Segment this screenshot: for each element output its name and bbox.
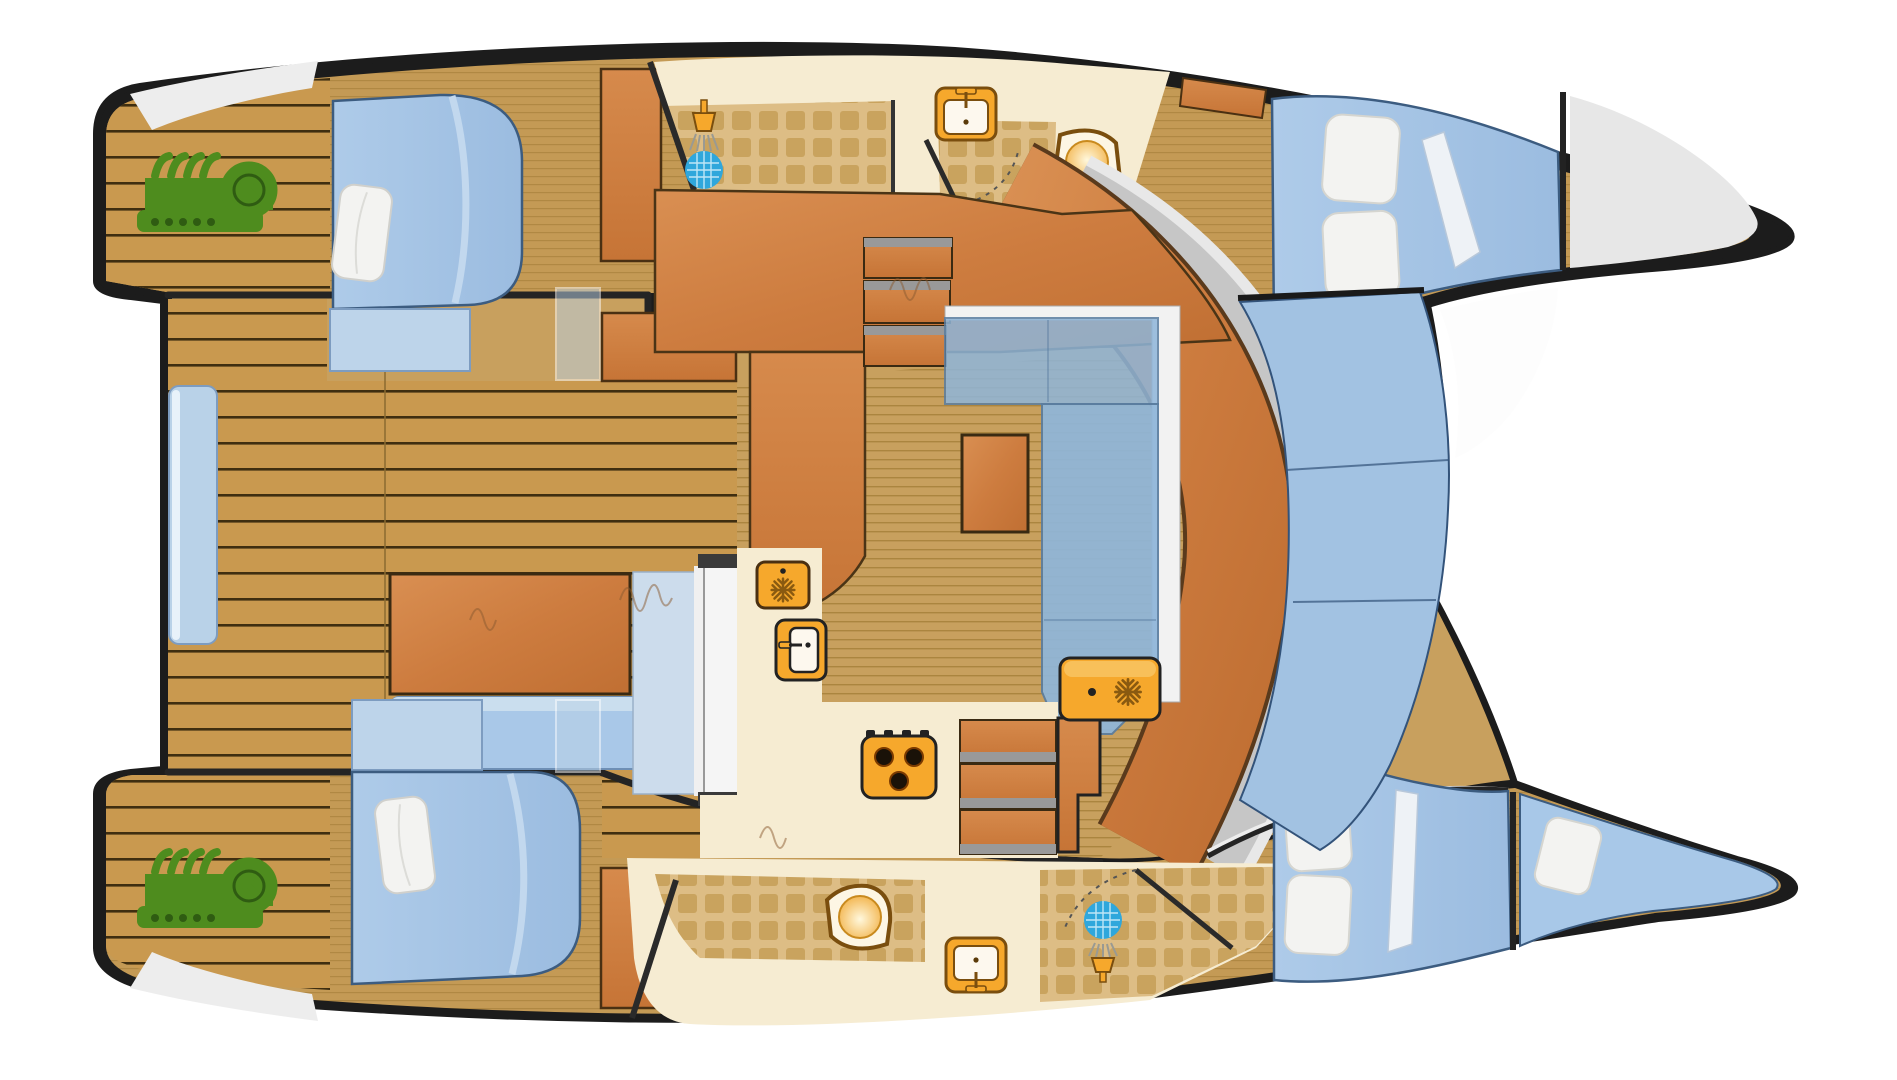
sink-icon	[936, 88, 996, 140]
sink-icon	[946, 938, 1006, 992]
salon-sliding-door	[704, 566, 738, 794]
starboard-companionway-stairs	[960, 720, 1056, 854]
foredeck-gap	[1440, 288, 1558, 458]
freezer-icon	[1060, 658, 1160, 720]
door-track	[694, 566, 704, 796]
floor-plan-page	[0, 0, 1897, 1080]
cabin-window	[556, 700, 600, 772]
toilet-icon	[827, 886, 890, 949]
bed-bench	[352, 700, 482, 770]
catamaran-floor-plan	[0, 0, 1897, 1080]
bed-bench	[330, 309, 470, 371]
pillow	[373, 795, 436, 895]
starboard-bathroom	[627, 858, 1332, 1025]
pillow	[330, 183, 393, 283]
galley-sink-icon	[776, 620, 826, 680]
pillow	[1322, 210, 1400, 300]
stove-icon	[862, 730, 936, 798]
wardrobe	[601, 69, 661, 261]
pillow	[1321, 114, 1401, 205]
salon-table	[962, 435, 1028, 532]
transom-bench-highlight	[172, 390, 180, 640]
port-engine-icon	[137, 156, 273, 232]
bow-locker	[1570, 96, 1758, 268]
pillow	[1284, 874, 1352, 955]
dinette-back-bench	[945, 318, 1158, 404]
cockpit-table	[390, 574, 630, 694]
fridge-icon	[757, 562, 809, 608]
starboard-engine-icon	[137, 852, 273, 928]
cabin-window	[556, 288, 600, 380]
port-companionway-stairs	[864, 238, 952, 366]
